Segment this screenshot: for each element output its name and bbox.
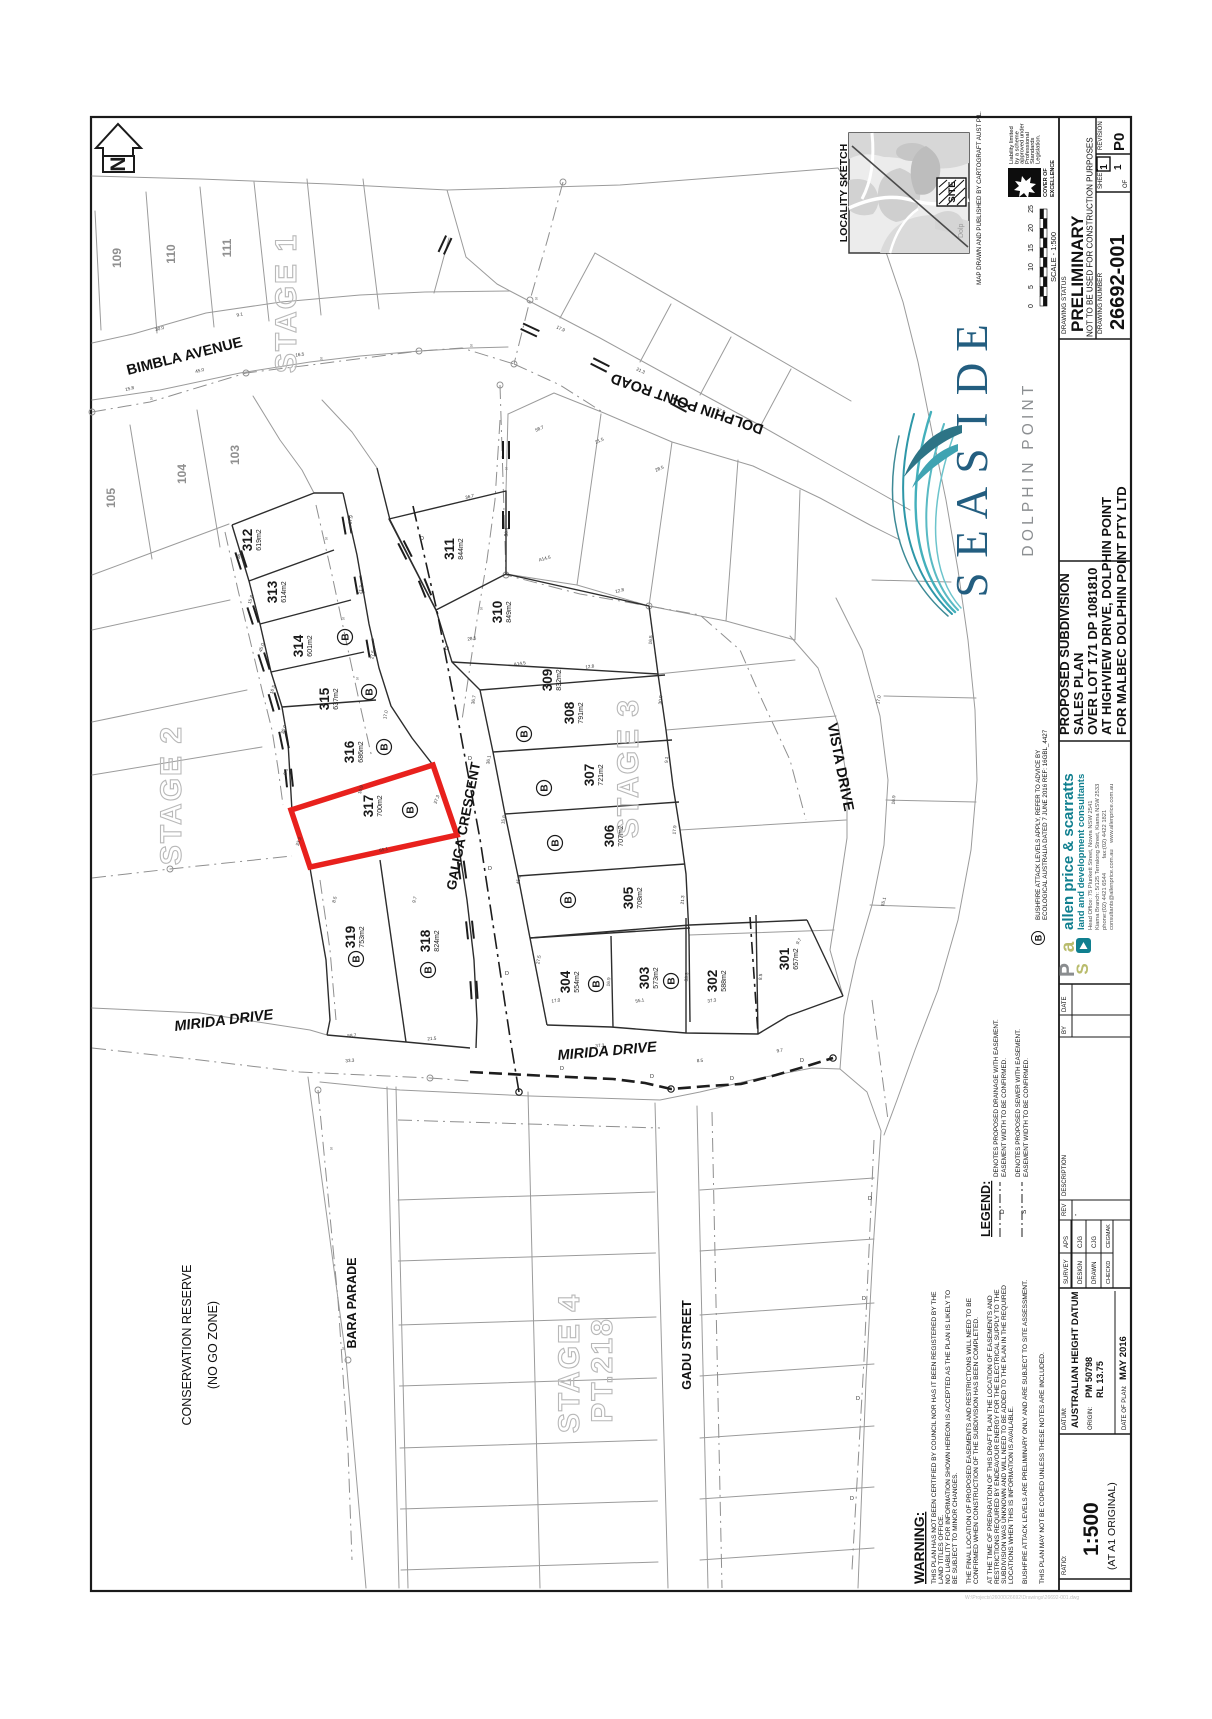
svg-text:D: D (560, 1066, 564, 1072)
svg-text:16.9: 16.9 (606, 977, 612, 987)
svg-text:844m2: 844m2 (458, 538, 465, 560)
svg-text:BY: BY (1062, 1026, 1068, 1034)
svg-text:312: 312 (240, 529, 255, 552)
svg-text:110: 110 (164, 244, 178, 264)
svg-text:STAGE 2: STAGE 2 (155, 725, 188, 865)
svg-text:21.3: 21.3 (680, 895, 686, 905)
svg-text:ORIGIN:: ORIGIN: (1088, 1407, 1094, 1430)
svg-text:s: s (330, 1146, 333, 1152)
svg-text:B: B (540, 784, 551, 791)
svg-text:OF: OF (1123, 179, 1129, 188)
svg-text:W:\Projects\26000\26692\Drawin: W:\Projects\26000\26692\Drawings\26692-0… (965, 1595, 1079, 1601)
svg-text:708m2: 708m2 (637, 887, 644, 909)
svg-text:B: B (592, 980, 603, 987)
svg-text:WARNING:: WARNING: (911, 1512, 927, 1584)
svg-text:824m2: 824m2 (434, 930, 441, 952)
svg-text:313: 313 (265, 580, 280, 603)
svg-text:20: 20 (1028, 224, 1035, 232)
svg-text:9.1: 9.1 (664, 756, 670, 763)
svg-text:NO LIABILITY FOR INFORMATION S: NO LIABILITY FOR INFORMATION SHOWN HEREO… (945, 1290, 952, 1584)
svg-text:SALES PLAN: SALES PLAN (1071, 653, 1086, 735)
svg-text:GADU STREET: GADU STREET (680, 1300, 694, 1390)
svg-text:103: 103 (228, 445, 242, 465)
svg-text:DRAWING STATUS: DRAWING STATUS (1061, 276, 1068, 334)
svg-text:104: 104 (175, 464, 189, 484)
svg-text:601m2: 601m2 (307, 635, 314, 657)
svg-text:land and development consultan: land and development consultants (1076, 774, 1087, 930)
svg-text:B: B (520, 730, 531, 737)
svg-text:308: 308 (562, 701, 577, 724)
svg-text:D: D (850, 1496, 854, 1502)
svg-text:BE SUBJECT TO MINOR CHANGES.: BE SUBJECT TO MINOR CHANGES. (952, 1472, 959, 1584)
svg-text:B: B (406, 806, 417, 813)
svg-text:B: B (380, 743, 391, 750)
svg-text:BUSHFIRE ATTACK LEVELS ARE PRE: BUSHFIRE ATTACK LEVELS ARE PRELIMINARY O… (1022, 1280, 1029, 1584)
svg-text:1: 1 (1099, 164, 1110, 170)
svg-text:B: B (424, 966, 435, 973)
svg-text:311: 311 (442, 538, 457, 560)
svg-text:APS: APS (1064, 1236, 1070, 1248)
svg-text:657m2: 657m2 (793, 948, 800, 970)
svg-text:CJG: CJG (1078, 1236, 1084, 1248)
svg-text:AT THE TIME OF PREPARATION OF: AT THE TIME OF PREPARATION OF THIS DRAFT… (987, 1295, 994, 1584)
svg-text:36.1: 36.1 (504, 527, 509, 537)
svg-text:S: S (1021, 1209, 1028, 1214)
svg-text:AUSTRALIAN HEIGHT DATUM: AUSTRALIAN HEIGHT DATUM (1070, 1291, 1081, 1428)
svg-text:753m2: 753m2 (359, 926, 366, 948)
svg-text:B: B (667, 977, 678, 984)
svg-text:DATE: DATE (1062, 996, 1068, 1012)
svg-text:PROPOSED SUBDIVISION: PROPOSED SUBDIVISION (1057, 573, 1072, 735)
svg-text:phone:(02) 4421 6544 f: phone:(02) 4421 6544 fax:(02) 4422 1821 (1102, 810, 1108, 930)
svg-text:30.0: 30.0 (658, 695, 664, 705)
svg-text:AT HIGHVIEW DRIVE, DOLPHIN POI: AT HIGHVIEW DRIVE, DOLPHIN POINT (1099, 497, 1114, 735)
svg-text:Dolp: Dolp (958, 223, 965, 238)
svg-text:SITE: SITE (947, 181, 958, 202)
svg-text:D: D (999, 1209, 1006, 1214)
svg-text:s: s (480, 606, 483, 612)
svg-text:CONSERVATION RESERVE: CONSERVATION RESERVE (180, 1265, 194, 1426)
svg-text:D: D (650, 1074, 654, 1080)
svg-text:849m2: 849m2 (506, 601, 513, 623)
svg-text:RESTRICTIONS REQUIRED BY ENDEA: RESTRICTIONS REQUIRED BY ENDEAVOUR ENERG… (994, 1289, 1001, 1584)
svg-text:EXCELLENCE: EXCELLENCE (1050, 160, 1056, 197)
svg-text:S: S (947, 572, 997, 597)
svg-text:D: D (856, 1396, 860, 1402)
svg-text:DENOTES PROPOSED SEWER WITH EA: DENOTES PROPOSED SEWER WITH EASEMENT. (1015, 1029, 1022, 1177)
svg-text:D: D (730, 1076, 734, 1082)
svg-text:E: E (947, 324, 997, 352)
svg-text:637m2: 637m2 (333, 688, 340, 710)
svg-text:DRAWN: DRAWN (1092, 1262, 1098, 1284)
svg-text:317: 317 (361, 795, 376, 818)
svg-text:318: 318 (418, 929, 433, 952)
svg-text:MAP DRAWN AND PUBLISHED BY CAR: MAP DRAWN AND PUBLISHED BY CARTOGRAFT AU… (976, 111, 983, 285)
svg-text:B: B (341, 633, 352, 640)
svg-text:315: 315 (317, 687, 332, 710)
svg-text:1: 1 (1113, 164, 1124, 170)
svg-text:PT.218: PT.218 (586, 1317, 619, 1422)
svg-text:DESIGN: DESIGN (1078, 1261, 1084, 1284)
svg-text:305: 305 (621, 886, 636, 909)
svg-text:ECOLOGICAL AUSTRALIA DATED 7 J: ECOLOGICAL AUSTRALIA DATED 7 JUNE 2016 R… (1042, 729, 1049, 920)
svg-text:DESCRIPTION: DESCRIPTION (1062, 1155, 1068, 1196)
svg-text:D: D (868, 1196, 872, 1202)
svg-text:N: N (107, 156, 130, 171)
svg-text:700m2: 700m2 (377, 795, 384, 817)
svg-text:DOLPHIN POINT: DOLPHIN POINT (1020, 381, 1037, 556)
svg-text:B: B (1034, 934, 1044, 941)
svg-text:310: 310 (490, 601, 505, 624)
svg-text:RL 13.75: RL 13.75 (1095, 1361, 1105, 1398)
svg-text:316: 316 (342, 740, 357, 763)
svg-text:NOT TO BE USED FOR CONSTRUCTIO: NOT TO BE USED FOR CONSTRUCTION PURPOSES (1086, 137, 1095, 337)
svg-text:THIS PLAN HAS NOT BEEN CERTIFI: THIS PLAN HAS NOT BEEN CERTIFIED BY COUN… (931, 1291, 938, 1584)
svg-text:REV: REV (1062, 1204, 1068, 1216)
svg-text:CHECKD: CHECKD (1106, 1261, 1112, 1284)
svg-text:105: 105 (104, 488, 118, 508)
svg-text:D: D (505, 971, 509, 977)
svg-text:BUSHFIRE ATTACK LEVELS APPLY,: BUSHFIRE ATTACK LEVELS APPLY, REFER TO A… (1035, 750, 1042, 920)
svg-text:D: D (862, 1296, 866, 1302)
svg-text:588m2: 588m2 (721, 970, 728, 992)
svg-text:309: 309 (540, 669, 555, 692)
svg-text:791m2: 791m2 (578, 702, 585, 724)
svg-text:303: 303 (637, 966, 652, 989)
svg-text:8.5: 8.5 (696, 1058, 703, 1064)
svg-text:17.9: 17.9 (672, 825, 678, 835)
svg-text:109: 109 (110, 248, 124, 268)
svg-text:PRELIMINARY: PRELIMINARY (1068, 215, 1087, 332)
svg-text:s: s (320, 356, 323, 362)
svg-text:s: s (356, 676, 359, 682)
svg-text:686m2: 686m2 (358, 741, 365, 763)
svg-text:614m2: 614m2 (281, 581, 288, 603)
svg-text:21.5: 21.5 (427, 1036, 437, 1042)
svg-text:DENOTES PROPOSED DRAINAGE WITH: DENOTES PROPOSED DRAINAGE WITH EASEMENT. (993, 1019, 1000, 1177)
svg-text:554m2: 554m2 (574, 971, 581, 993)
svg-text:B: B (365, 688, 376, 695)
svg-text:16.9: 16.9 (891, 795, 897, 805)
svg-text:DATE OF PLAN:: DATE OF PLAN: (1122, 1385, 1128, 1430)
svg-text:I: I (947, 413, 997, 428)
svg-text:58.7: 58.7 (347, 1033, 357, 1039)
svg-text:LAND TITLES OFFICE.: LAND TITLES OFFICE. (938, 1514, 945, 1584)
svg-text:15: 15 (1028, 244, 1035, 252)
svg-text:A: A (947, 486, 997, 519)
svg-text:s: s (325, 536, 328, 542)
svg-text:5: 5 (1028, 285, 1035, 289)
svg-text:RATIO:: RATIO: (1062, 1555, 1068, 1575)
svg-text:LOCATIONS WHEN THIS IS INFORMA: LOCATIONS WHEN THIS IS INFORMATION IS AV… (1008, 1406, 1015, 1584)
svg-text:DATUM:: DATUM: (1062, 1407, 1068, 1430)
svg-text:P0: P0 (1111, 133, 1128, 151)
svg-text:STAGE 4: STAGE 4 (553, 1293, 586, 1433)
svg-text:consultants@allenprice.com.au: consultants@allenprice.com.au www.allenp… (1109, 784, 1115, 930)
svg-text:S: S (947, 448, 997, 473)
svg-text:EASEMENT WIDTH TO BE CONFIRMED: EASEMENT WIDTH TO BE CONFIRMED. (1023, 1058, 1030, 1177)
svg-text:STAGE 3: STAGE 3 (612, 698, 645, 838)
svg-text:SCALE - 1:500: SCALE - 1:500 (1049, 232, 1058, 282)
svg-text:CJG: CJG (1092, 1236, 1098, 1248)
svg-text:314: 314 (291, 634, 306, 657)
svg-text:Head Office: 75 Plunkett Stree: Head Office: 75 Plunkett Street, Nowra N… (1088, 801, 1094, 930)
svg-text:25: 25 (1028, 205, 1035, 213)
svg-text:SHEET: SHEET (1098, 169, 1104, 189)
svg-text:B: B (352, 955, 363, 962)
svg-text:D: D (800, 1058, 804, 1064)
svg-text:D: D (420, 536, 424, 542)
svg-text:SUBDIVISION WAS UNKNOWN AND WI: SUBDIVISION WAS UNKNOWN AND WILL NEED TO… (1001, 1285, 1008, 1584)
svg-text:s: s (505, 466, 508, 472)
svg-text:BARA PARADE: BARA PARADE (345, 1258, 359, 1349)
svg-text:S: S (1073, 963, 1092, 974)
svg-text:319: 319 (343, 926, 358, 949)
svg-text:304: 304 (558, 970, 573, 993)
svg-text:(AT A1 ORIGINAL): (AT A1 ORIGINAL) (1106, 1482, 1118, 1570)
svg-text:CEGMAK: CEGMAK (1106, 1224, 1112, 1248)
svg-text:10: 10 (1028, 263, 1035, 271)
svg-text:STAGE 1: STAGE 1 (270, 233, 303, 373)
svg-text:s: s (342, 616, 345, 622)
svg-text:Kiama Branch: 5/125 Terralong: Kiama Branch: 5/125 Terralong Street, Ki… (1095, 784, 1101, 930)
svg-text:573m2: 573m2 (653, 967, 660, 989)
svg-text:DRAWING NUMBER: DRAWING NUMBER (1097, 273, 1104, 334)
svg-text:D: D (947, 363, 997, 396)
svg-text:(NO GO ZONE): (NO GO ZONE) (206, 1301, 220, 1389)
svg-text:LOCALITY SKETCH: LOCALITY SKETCH (838, 144, 850, 242)
svg-text:B: B (551, 839, 562, 846)
svg-text:619m2: 619m2 (256, 529, 263, 551)
svg-text:832m2: 832m2 (556, 669, 563, 691)
svg-text:THIS PLAN MAY NOT BE COPIED UN: THIS PLAN MAY NOT BE COPIED UNLESS THESE… (1039, 1352, 1046, 1584)
svg-text:D: D (488, 866, 492, 872)
svg-text:OVER LOT 171 DP 1081810: OVER LOT 171 DP 1081810 (1085, 568, 1100, 735)
svg-text:s: s (470, 343, 473, 349)
svg-text:0: 0 (1028, 304, 1035, 308)
svg-text:REVISION: REVISION (1098, 121, 1104, 150)
svg-text:111: 111 (220, 238, 234, 257)
svg-text:a: a (1058, 941, 1079, 952)
svg-text:D: D (445, 646, 449, 652)
svg-text:26692-001: 26692-001 (1107, 234, 1129, 330)
svg-text:E: E (947, 530, 997, 558)
svg-text:307: 307 (582, 764, 597, 787)
svg-text:EASEMENT WIDTH TO BE CONFIRMED: EASEMENT WIDTH TO BE CONFIRMED. (1001, 1058, 1008, 1177)
svg-text:FOR MALBEC DOLPHIN POINT PTY L: FOR MALBEC DOLPHIN POINT PTY LTD (1114, 486, 1129, 735)
svg-text:721m2: 721m2 (598, 764, 605, 786)
svg-text:301: 301 (777, 947, 792, 970)
svg-text:PM 50798: PM 50798 (1084, 1357, 1094, 1398)
svg-text:s: s (150, 396, 153, 402)
svg-text:33.3: 33.3 (345, 1058, 355, 1064)
svg-text:16.5: 16.5 (648, 635, 654, 645)
svg-text:1:500: 1:500 (1080, 1502, 1103, 1556)
svg-text:s: s (535, 296, 538, 302)
svg-text:302: 302 (705, 970, 720, 993)
svg-text:LEGEND:: LEGEND: (979, 1181, 993, 1237)
svg-text:33.3: 33.3 (684, 972, 690, 982)
svg-text:THE FINAL LOCATION OF PROPOSED: THE FINAL LOCATION OF PROPOSED EASEMENTS… (966, 1297, 973, 1584)
svg-text:allen price & scarratts: allen price & scarratts (1060, 773, 1077, 930)
svg-text:CONFIRMED WHEN CONSTRUCTION OF: CONFIRMED WHEN CONSTRUCTION OF THE SUBDI… (973, 1317, 980, 1584)
svg-text:Legislation.: Legislation. (1036, 134, 1042, 164)
svg-text:SURVEY: SURVEY (1064, 1259, 1070, 1284)
svg-text:COVER OF: COVER OF (1043, 168, 1049, 197)
svg-text:B: B (564, 896, 575, 903)
svg-text:8.5: 8.5 (758, 973, 764, 980)
svg-text:MAY 2016: MAY 2016 (1118, 1336, 1129, 1380)
